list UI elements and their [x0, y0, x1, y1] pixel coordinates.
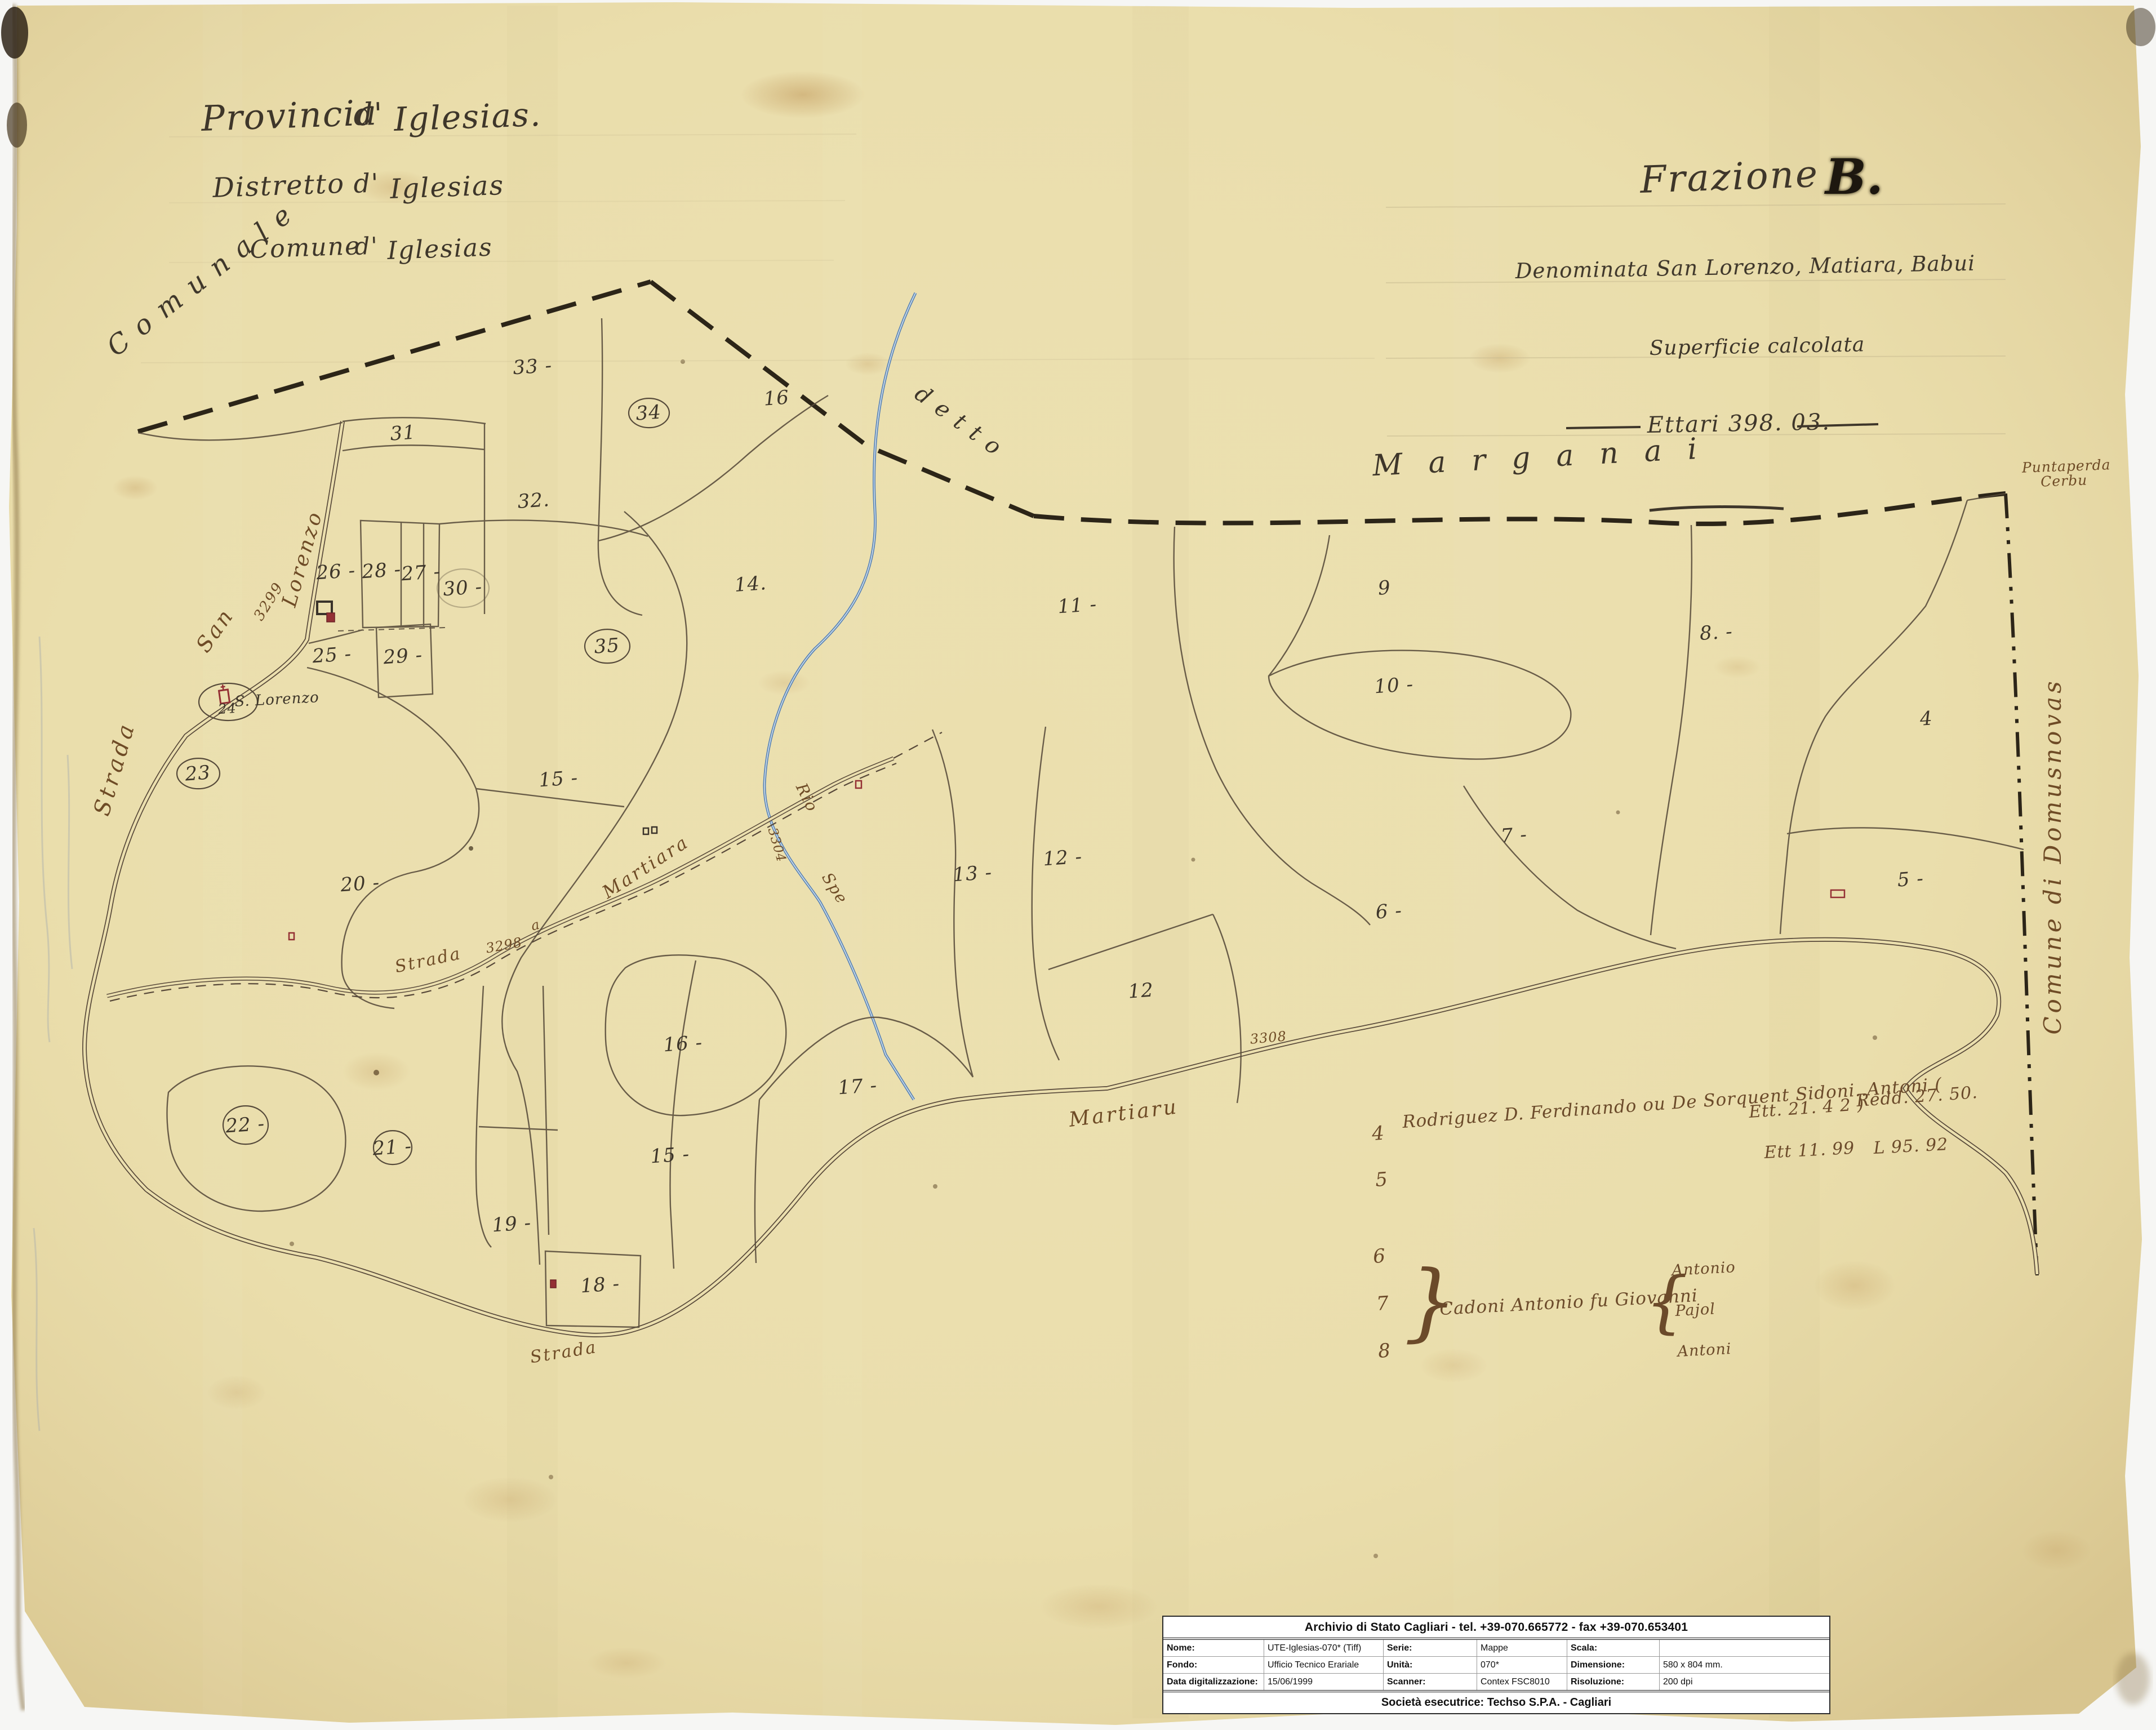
parcel-number: 20 -	[339, 871, 380, 897]
province-title-word: d'	[354, 232, 379, 260]
archive-field-label: Unità:	[1383, 1657, 1477, 1673]
archive-field-value: Ufficio Tecnico Erariale	[1264, 1657, 1383, 1673]
parcel-number: 32.	[517, 488, 550, 513]
archive-field-value: 200 dpi	[1659, 1674, 1828, 1690]
parcel-number: 10 -	[1373, 673, 1414, 699]
archive-row: Data digitalizzazione:15/06/1999Scanner:…	[1163, 1673, 1829, 1690]
scanned-map-page: Provinciad'Iglesias.Distrettod'IglesiasC…	[0, 0, 2156, 1730]
archive-field-label: Risoluzione:	[1567, 1674, 1659, 1690]
annotation-text: 6	[1372, 1244, 1386, 1268]
province-title-word: Iglesias	[389, 170, 505, 205]
parcel-number: 8. -	[1699, 620, 1733, 645]
parcel-number: 16 -	[663, 1031, 703, 1057]
province-title-word: Iglesias	[386, 233, 494, 265]
archive-row: Fondo:Ufficio Tecnico ErarialeUnità:070*…	[1163, 1656, 1829, 1673]
parcel-number: 29 -	[382, 644, 423, 669]
parcel-number: 35	[593, 634, 620, 658]
parcel-number: 25 -	[311, 643, 352, 668]
parcel-number: 17 -	[837, 1074, 878, 1100]
parcel-number: 12	[1127, 979, 1154, 1003]
annotation-text: 8	[1377, 1339, 1392, 1362]
parcel-number: 21 -	[371, 1135, 412, 1160]
archive-field-value	[1659, 1640, 1828, 1656]
farm-building-red	[550, 1280, 556, 1288]
parcel-number: 26 -	[315, 559, 356, 585]
parcel-number: 34	[635, 401, 662, 425]
parcel-number: 23	[184, 761, 211, 785]
province-title-word: Distretto	[211, 168, 345, 204]
frazione-title: Frazione	[1639, 152, 1820, 202]
archive-field-value: 580 x 804 mm.	[1659, 1657, 1828, 1673]
parcel-number: 6 -	[1375, 899, 1403, 923]
parcel-number: 9	[1377, 576, 1392, 599]
archive-header: Archivio di Stato Cagliari - tel. +39-07…	[1163, 1617, 1829, 1638]
parcel-number: 27 -	[400, 561, 441, 586]
parcel-number: 4	[1919, 707, 1933, 731]
parcel-number: 15 -	[538, 767, 579, 792]
archive-field-label: Dimensione:	[1567, 1657, 1659, 1673]
annotation-text: Antoni	[1675, 1340, 1732, 1360]
map-label-3308: 3308	[1250, 1028, 1287, 1047]
archive-grid: Nome:UTE-Iglesias-070* (Tiff)Serie:Mappe…	[1163, 1638, 1829, 1692]
parcel-number: 22 -	[224, 1113, 265, 1138]
parcel-number: 30 -	[442, 576, 483, 601]
annotation-text: 7	[1376, 1292, 1390, 1315]
province-title-word: Iglesias.	[393, 95, 542, 139]
archive-field-label: Serie:	[1383, 1640, 1477, 1656]
superficie-line: Superficie calcolata	[1649, 333, 1865, 360]
parcel-number: 18 -	[580, 1273, 620, 1298]
archive-footer: Società esecutrice: Techso S.P.A. - Cagl…	[1163, 1692, 1829, 1713]
annotation-text: L 95. 92	[1873, 1135, 1949, 1158]
parcel-number: 14.	[734, 572, 767, 597]
village-building-red	[327, 613, 335, 622]
archive-field-label: Nome:	[1163, 1640, 1264, 1656]
archive-field-label: Data digitalizzazione:	[1163, 1674, 1264, 1690]
province-title-word: Provincia	[200, 92, 378, 139]
parcel-number: 16	[763, 386, 790, 410]
parcel-number: 13 -	[952, 861, 993, 887]
annotation-text: 5	[1375, 1168, 1389, 1191]
parcel-number: 19 -	[491, 1212, 532, 1237]
archive-field-value: Contex FSC8010	[1477, 1674, 1567, 1690]
archive-row: Nome:UTE-Iglesias-070* (Tiff)Serie:Mappe…	[1163, 1640, 1829, 1656]
province-title-word: d'	[353, 96, 384, 132]
parcel-number: 5 -	[1896, 867, 1924, 891]
annotation-text: 4	[1371, 1122, 1385, 1145]
map-label-cerbu: Cerbu	[2041, 472, 2088, 490]
archive-field-value: UTE-Iglesias-070* (Tiff)	[1264, 1640, 1383, 1656]
province-title-word: d'	[353, 167, 380, 199]
parcel-number: 7 -	[1500, 823, 1528, 847]
archive-field-value: Mappe	[1477, 1640, 1567, 1656]
archive-field-label: Scanner:	[1383, 1674, 1477, 1690]
parcel-number: 31	[389, 421, 416, 445]
parcel-number: 12 -	[1042, 846, 1083, 871]
frazione-letter: B.	[1824, 149, 1883, 206]
parcel-number: 28 -	[361, 558, 402, 584]
archive-field-value: 070*	[1477, 1657, 1567, 1673]
annotation-text: Pajol	[1674, 1300, 1716, 1320]
archive-field-value: 15/06/1999	[1264, 1674, 1383, 1690]
map-label-comune-di-domusnovas: Comune di Domusnovas	[2039, 678, 2066, 1034]
archive-field-label: Fondo:	[1163, 1657, 1264, 1673]
parcel-number: 33 -	[512, 354, 553, 380]
archive-metadata-table: Archivio di Stato Cagliari - tel. +39-07…	[1162, 1616, 1830, 1714]
parcel-number: 15 -	[650, 1143, 690, 1168]
archive-field-label: Scala:	[1567, 1640, 1659, 1656]
annotation-text: Antonio	[1670, 1258, 1736, 1279]
parcel-number: 11 -	[1057, 593, 1097, 619]
map-sheet-scan: Provinciad'Iglesias.Distrettod'IglesiasC…	[0, 0, 2156, 1730]
parcel-number: 24	[217, 700, 237, 717]
